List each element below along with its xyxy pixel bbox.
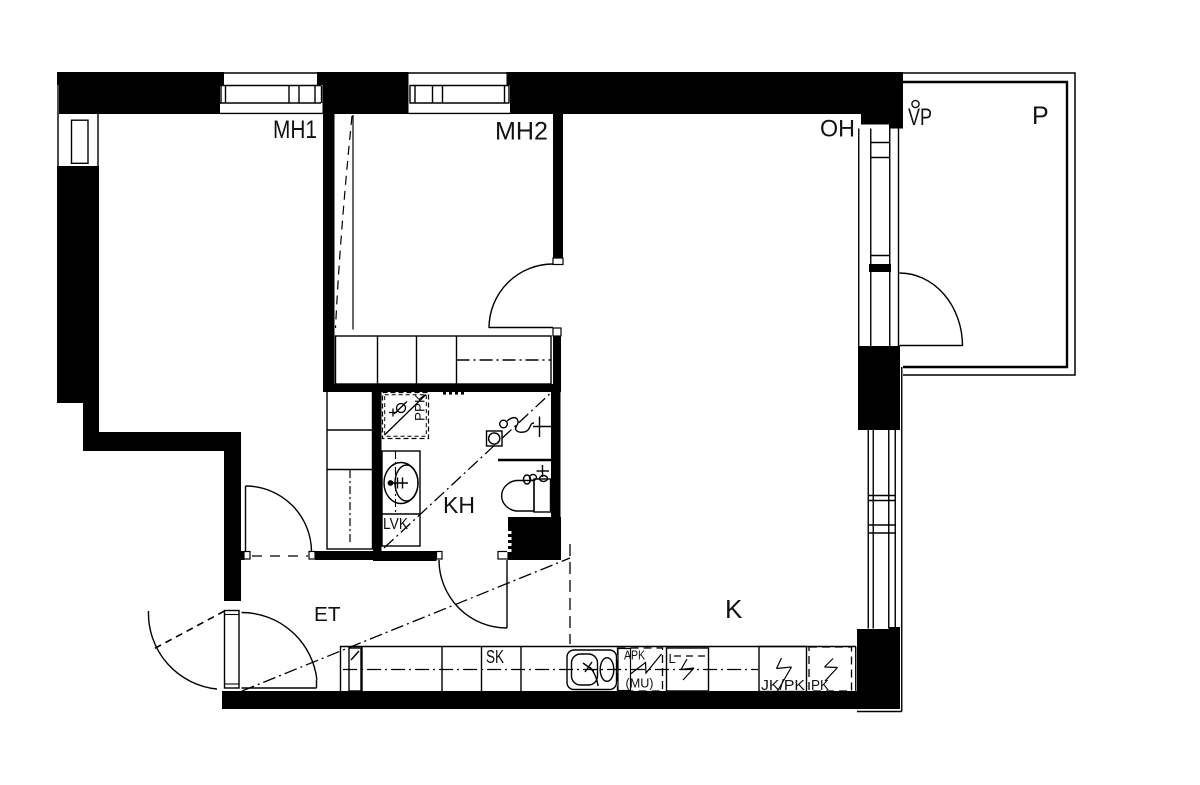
svg-text:(MU): (MU) (626, 676, 654, 691)
svg-text:KH: KH (443, 492, 475, 518)
svg-text:OH: OH (820, 116, 855, 143)
svg-text:P: P (1032, 102, 1049, 130)
svg-text:K: K (725, 594, 743, 624)
svg-text:ET: ET (314, 604, 341, 626)
svg-text:L: L (669, 651, 676, 666)
svg-text:MH2: MH2 (495, 118, 548, 146)
svg-text:PPK: PPK (412, 393, 428, 421)
svg-text:LVK: LVK (383, 516, 408, 533)
svg-text:SK: SK (486, 647, 504, 667)
svg-text:VP: VP (908, 104, 932, 131)
svg-text:JK/PK: JK/PK (761, 677, 805, 694)
svg-text:MH1: MH1 (273, 116, 317, 144)
svg-text:PK: PK (811, 677, 829, 694)
svg-text:APK: APK (624, 648, 645, 663)
